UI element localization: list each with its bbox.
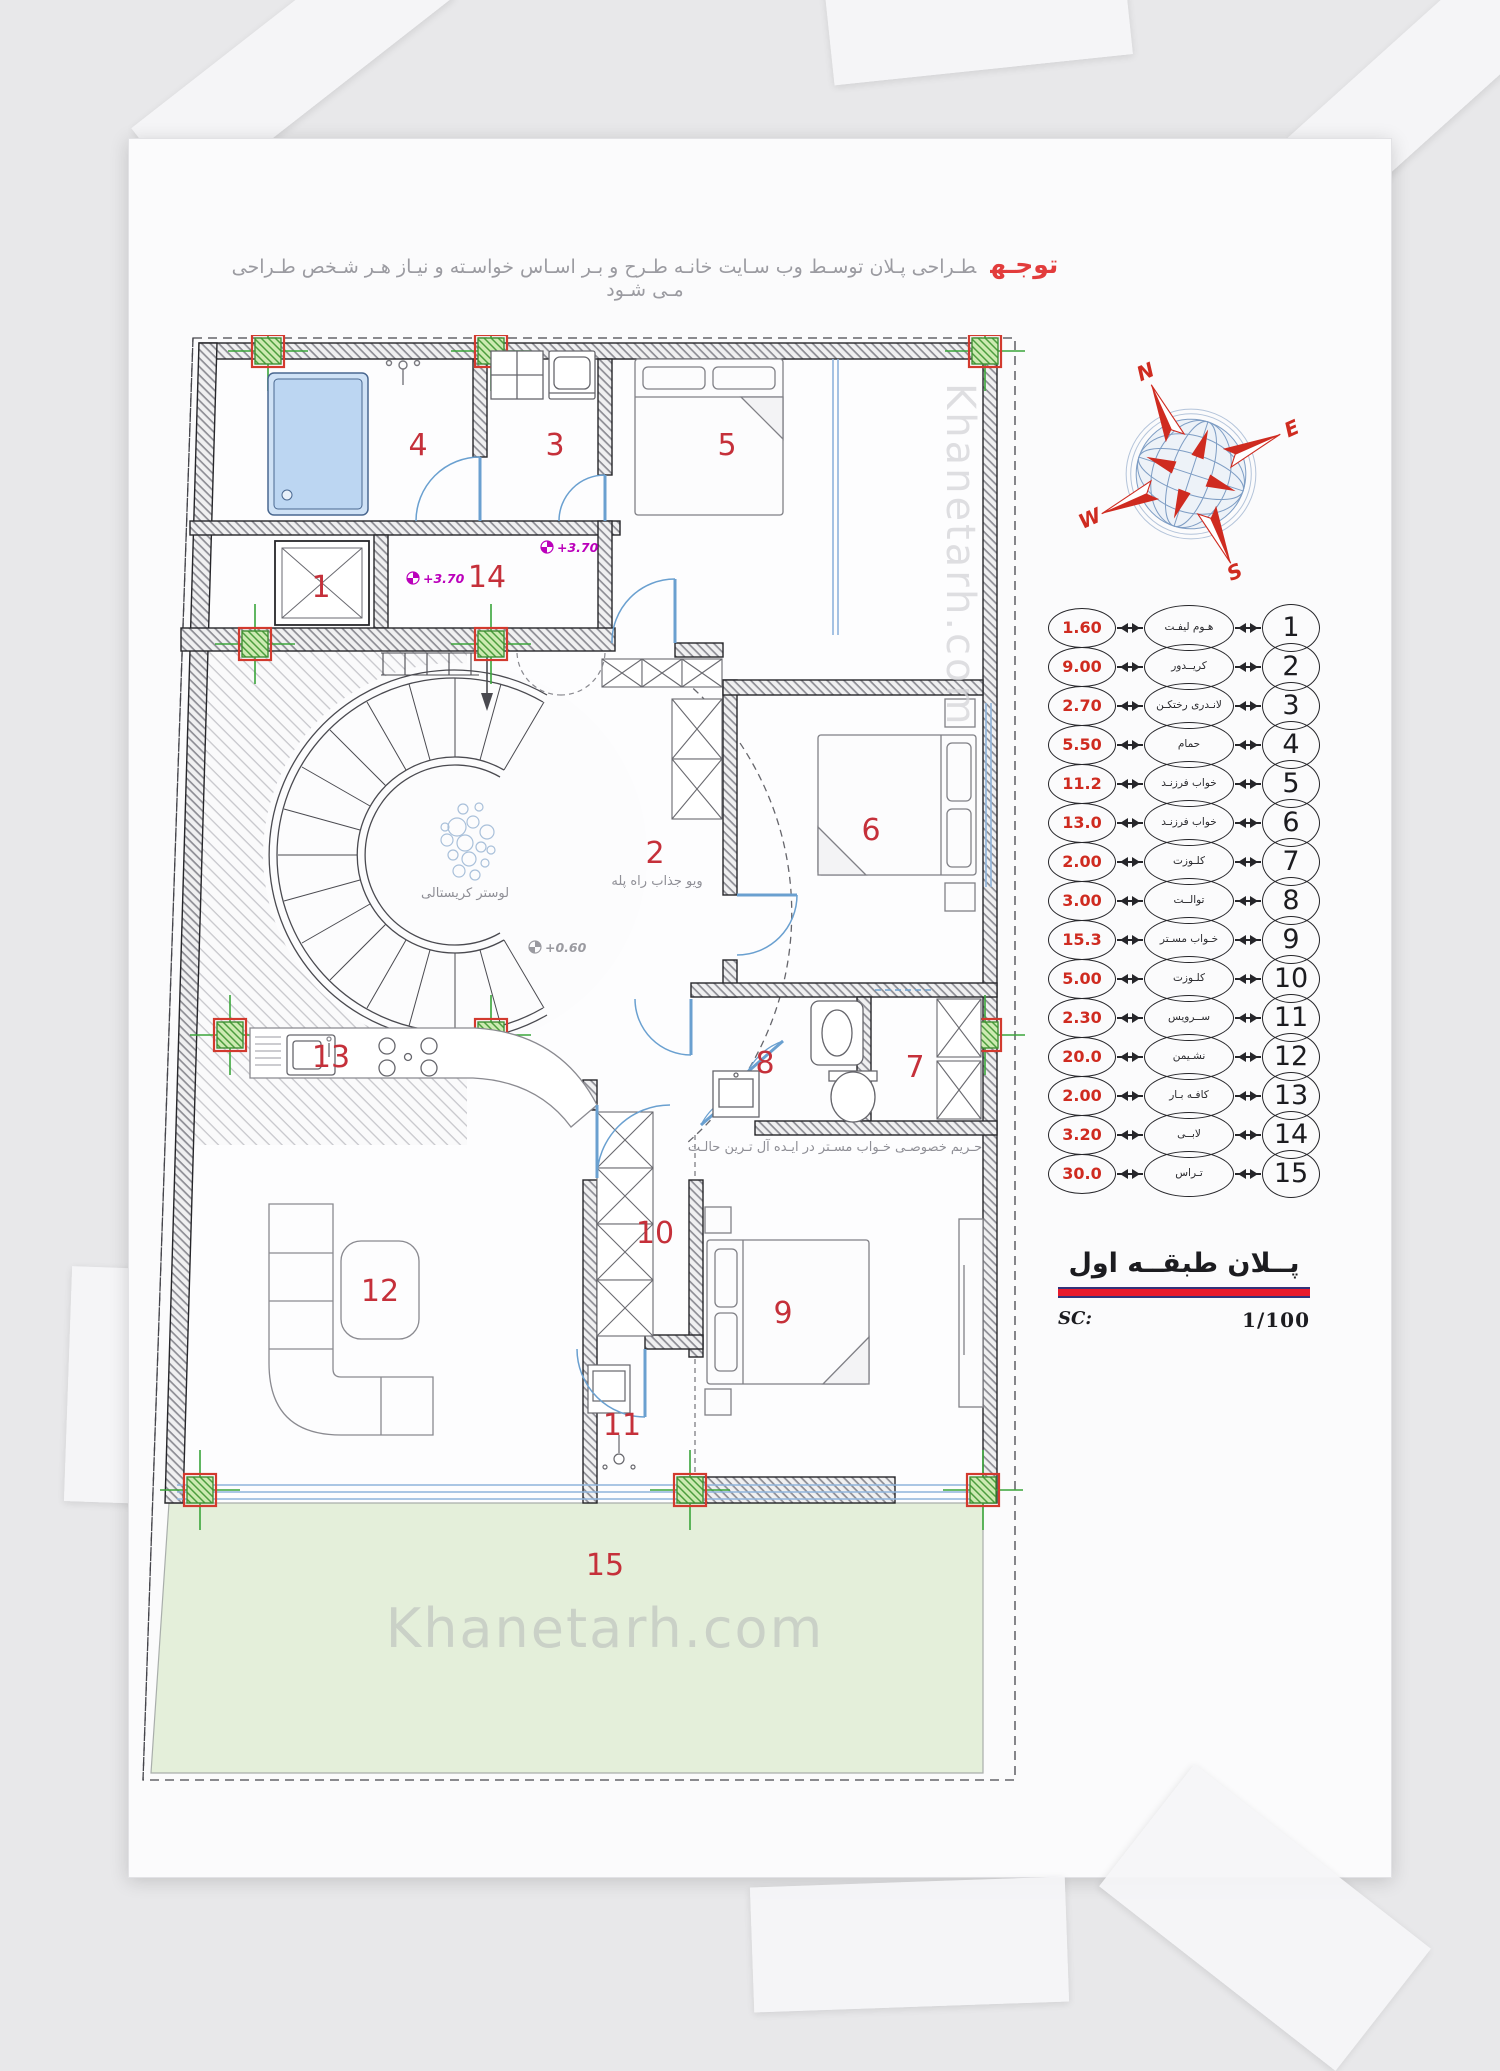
legend-arrow bbox=[1117, 744, 1143, 746]
legend-arrow bbox=[1235, 666, 1261, 668]
legend-arrow bbox=[1235, 900, 1261, 902]
legend-area-value: 2.00 bbox=[1062, 852, 1101, 871]
bed-room5 bbox=[635, 359, 783, 515]
legend-arrow bbox=[1235, 1095, 1261, 1097]
room-legend: 1.60 هـوم لیفـت 1 9.00 کریــدور 2 2.70 ل… bbox=[1048, 608, 1320, 1193]
legend-room-number: 5 bbox=[1282, 768, 1299, 799]
watermark-vertical: Khanetarh.com bbox=[937, 383, 983, 728]
legend-area-oval: 3.20 bbox=[1048, 1115, 1116, 1155]
legend-area-oval: 15.3 bbox=[1048, 920, 1116, 960]
legend-arrow bbox=[1117, 783, 1143, 785]
legend-arrow bbox=[1235, 1134, 1261, 1136]
legend-room-name: تـراس bbox=[1175, 1167, 1203, 1179]
legend-area-oval: 3.00 bbox=[1048, 881, 1116, 921]
legend-area-value: 11.2 bbox=[1062, 774, 1101, 793]
scale-label: SC: bbox=[1058, 1308, 1092, 1332]
legend-arrow bbox=[1117, 1056, 1143, 1058]
room-label-12: 12 bbox=[361, 1274, 399, 1309]
room-label-3: 3 bbox=[545, 428, 564, 463]
scale-value: 1/100 bbox=[1242, 1308, 1310, 1332]
room-label-5: 5 bbox=[717, 428, 736, 463]
title-underline bbox=[1058, 1287, 1310, 1298]
legend-arrow bbox=[1117, 939, 1143, 941]
legend-room-number: 6 bbox=[1282, 807, 1299, 838]
legend-room-name: حمام bbox=[1178, 738, 1200, 750]
note-text: طـراحی پـلان توسـط وب سـایت خانـه طـرح و… bbox=[232, 256, 977, 301]
legend-row: 2.30 ســرویس 11 bbox=[1048, 998, 1320, 1037]
legend-room-name: هـوم لیفـت bbox=[1165, 621, 1214, 633]
legend-area-oval: 30.0 bbox=[1048, 1154, 1116, 1194]
annotation-stair-view: ویو جذاب راه پله bbox=[611, 874, 702, 889]
annotation-privacy: حـریم خصوصـی خـواب مسـتر در ایـده آل تـر… bbox=[688, 1138, 982, 1155]
svg-text:+0.60: +0.60 bbox=[545, 940, 587, 955]
legend-room-number: 12 bbox=[1274, 1041, 1308, 1072]
legend-room-name: ســرویس bbox=[1168, 1011, 1210, 1023]
title-block: پــلان طبقــه اول SC: 1/100 bbox=[1058, 1248, 1310, 1332]
legend-area-oval: 5.50 bbox=[1048, 725, 1116, 765]
legend-area-value: 15.3 bbox=[1062, 930, 1101, 949]
legend-room-number: 1 bbox=[1282, 612, 1299, 643]
legend-area-oval: 2.00 bbox=[1048, 842, 1116, 882]
legend-area-value: 3.20 bbox=[1062, 1125, 1101, 1144]
legend-row: 9.00 کریــدور 2 bbox=[1048, 647, 1320, 686]
legend-area-value: 30.0 bbox=[1062, 1164, 1101, 1183]
legend-area-value: 20.0 bbox=[1062, 1047, 1101, 1066]
legend-room-name: خواب فرزنـد bbox=[1161, 777, 1216, 789]
compass-rose: N E S W bbox=[1075, 358, 1307, 590]
floor-plan: +3.70 +3.70 +0.60 Khanetarh.com Khanetar… bbox=[135, 335, 1045, 1805]
legend-arrow bbox=[1235, 627, 1261, 629]
room-label-6: 6 bbox=[861, 813, 880, 848]
tape-top-right bbox=[823, 0, 1133, 85]
plan-title: پــلان طبقــه اول bbox=[1058, 1248, 1310, 1279]
legend-area-oval: 2.30 bbox=[1048, 998, 1116, 1038]
legend-room-number: 4 bbox=[1282, 729, 1299, 760]
legend-area-value: 9.00 bbox=[1062, 657, 1101, 676]
legend-arrow bbox=[1117, 822, 1143, 824]
legend-room-number: 10 bbox=[1274, 963, 1308, 994]
annotation-chandelier: لوستر کریستالی bbox=[421, 886, 509, 901]
room-label-2: 2 bbox=[645, 836, 664, 871]
legend-arrow bbox=[1235, 783, 1261, 785]
room-label-4: 4 bbox=[408, 428, 427, 463]
legend-arrow bbox=[1117, 1134, 1143, 1136]
legend-arrow bbox=[1235, 939, 1261, 941]
legend-room-number: 9 bbox=[1282, 924, 1299, 955]
legend-room-name: نشـیمن bbox=[1173, 1050, 1206, 1062]
legend-room-number: 11 bbox=[1274, 1002, 1308, 1033]
legend-area-value: 5.50 bbox=[1062, 735, 1101, 754]
legend-row: 5.00 کلـوزت 10 bbox=[1048, 959, 1320, 998]
legend-area-oval: 9.00 bbox=[1048, 647, 1116, 687]
legend-arrow bbox=[1235, 1056, 1261, 1058]
legend-row: 30.0 تـراس 15 bbox=[1048, 1154, 1320, 1193]
legend-arrow bbox=[1235, 978, 1261, 980]
bathtub bbox=[268, 373, 368, 515]
compass-w-label: W bbox=[1075, 503, 1106, 534]
legend-arrow bbox=[1117, 1017, 1143, 1019]
legend-arrow bbox=[1235, 705, 1261, 707]
room-label-11: 11 bbox=[603, 1408, 641, 1443]
legend-row: 15.3 خـواب مسـتر 9 bbox=[1048, 920, 1320, 959]
legend-arrow bbox=[1117, 705, 1143, 707]
legend-row: 11.2 خواب فرزنـد 5 bbox=[1048, 764, 1320, 803]
legend-area-value: 5.00 bbox=[1062, 969, 1101, 988]
legend-room-number: 3 bbox=[1282, 690, 1299, 721]
legend-row: 1.60 هـوم لیفـت 1 bbox=[1048, 608, 1320, 647]
legend-arrow bbox=[1235, 822, 1261, 824]
legend-room-number: 8 bbox=[1282, 885, 1299, 916]
legend-arrow bbox=[1117, 666, 1143, 668]
legend-area-value: 3.00 bbox=[1062, 891, 1101, 910]
tape-bottom-center bbox=[750, 1877, 1069, 2013]
room-label-15: 15 bbox=[586, 1548, 624, 1583]
legend-room-name: توالــت bbox=[1174, 894, 1205, 906]
legend-row: 2.00 کافـه بـار 13 bbox=[1048, 1076, 1320, 1115]
legend-room-number: 15 bbox=[1274, 1158, 1308, 1189]
legend-row: 5.50 حمام 4 bbox=[1048, 725, 1320, 764]
legend-arrow bbox=[1117, 1095, 1143, 1097]
legend-area-oval: 11.2 bbox=[1048, 764, 1116, 804]
legend-row: 20.0 نشـیمن 12 bbox=[1048, 1037, 1320, 1076]
legend-room-name: کلـوزت bbox=[1173, 855, 1205, 867]
legend-arrow bbox=[1117, 978, 1143, 980]
legend-arrow bbox=[1117, 861, 1143, 863]
legend-room-number: 2 bbox=[1282, 651, 1299, 682]
room-label-9: 9 bbox=[773, 1296, 792, 1331]
legend-row: 2.70 لانـدری رختکـن 3 bbox=[1048, 686, 1320, 725]
room-label-10: 10 bbox=[636, 1216, 674, 1251]
design-note: توجـهطـراحی پـلان توسـط وب سـایت خانـه ط… bbox=[225, 250, 1065, 301]
legend-area-oval: 20.0 bbox=[1048, 1037, 1116, 1077]
legend-room-name: لابــی bbox=[1177, 1128, 1201, 1140]
legend-arrow bbox=[1117, 1173, 1143, 1175]
legend-room-name: کریــدور bbox=[1171, 660, 1207, 672]
legend-name-oval: تـراس bbox=[1144, 1151, 1234, 1197]
legend-row: 3.00 توالــت 8 bbox=[1048, 881, 1320, 920]
compass-s-label: S bbox=[1223, 558, 1246, 586]
legend-area-oval: 5.00 bbox=[1048, 959, 1116, 999]
legend-room-number: 7 bbox=[1282, 846, 1299, 877]
legend-row: 2.00 کلـوزت 7 bbox=[1048, 842, 1320, 881]
compass-e-label: E bbox=[1281, 415, 1304, 443]
room-label-1: 1 bbox=[311, 570, 330, 605]
legend-room-name: کافـه بـار bbox=[1169, 1089, 1209, 1101]
legend-area-oval: 1.60 bbox=[1048, 608, 1116, 648]
legend-arrow bbox=[1117, 900, 1143, 902]
room-label-14: 14 bbox=[468, 560, 506, 595]
legend-room-name: خـواب مسـتر bbox=[1160, 933, 1218, 945]
legend-area-oval: 2.00 bbox=[1048, 1076, 1116, 1116]
legend-arrow bbox=[1235, 1173, 1261, 1175]
legend-row: 3.20 لابــی 14 bbox=[1048, 1115, 1320, 1154]
compass-n-label: N bbox=[1133, 358, 1158, 386]
legend-room-name: کلـوزت bbox=[1173, 972, 1205, 984]
legend-area-value: 2.30 bbox=[1062, 1008, 1101, 1027]
laundry-machines bbox=[491, 351, 595, 399]
legend-area-oval: 13.0 bbox=[1048, 803, 1116, 843]
watermark-horizontal: Khanetarh.com bbox=[386, 1597, 824, 1660]
legend-area-value: 13.0 bbox=[1062, 813, 1101, 832]
legend-area-value: 1.60 bbox=[1062, 618, 1101, 637]
legend-room-name: خواب فرزنـد bbox=[1161, 816, 1216, 828]
room-label-13: 13 bbox=[312, 1040, 350, 1075]
legend-area-oval: 2.70 bbox=[1048, 686, 1116, 726]
legend-room-name: لانـدری رختکـن bbox=[1156, 699, 1222, 711]
legend-room-number: 13 bbox=[1274, 1080, 1308, 1111]
legend-room-number: 14 bbox=[1274, 1119, 1308, 1150]
note-badge: توجـه bbox=[990, 250, 1058, 279]
room-label-8: 8 bbox=[755, 1046, 774, 1081]
room-label-7: 7 bbox=[905, 1050, 924, 1085]
legend-area-value: 2.70 bbox=[1062, 696, 1101, 715]
legend-arrow bbox=[1117, 627, 1143, 629]
svg-text:+3.70: +3.70 bbox=[423, 571, 465, 586]
svg-text:+3.70: +3.70 bbox=[557, 540, 599, 555]
legend-arrow bbox=[1235, 744, 1261, 746]
legend-arrow bbox=[1235, 861, 1261, 863]
legend-arrow bbox=[1235, 1017, 1261, 1019]
legend-area-value: 2.00 bbox=[1062, 1086, 1101, 1105]
legend-number-oval: 15 bbox=[1262, 1150, 1320, 1198]
compass-globe-icon bbox=[1122, 405, 1260, 543]
legend-row: 13.0 خواب فرزنـد 6 bbox=[1048, 803, 1320, 842]
